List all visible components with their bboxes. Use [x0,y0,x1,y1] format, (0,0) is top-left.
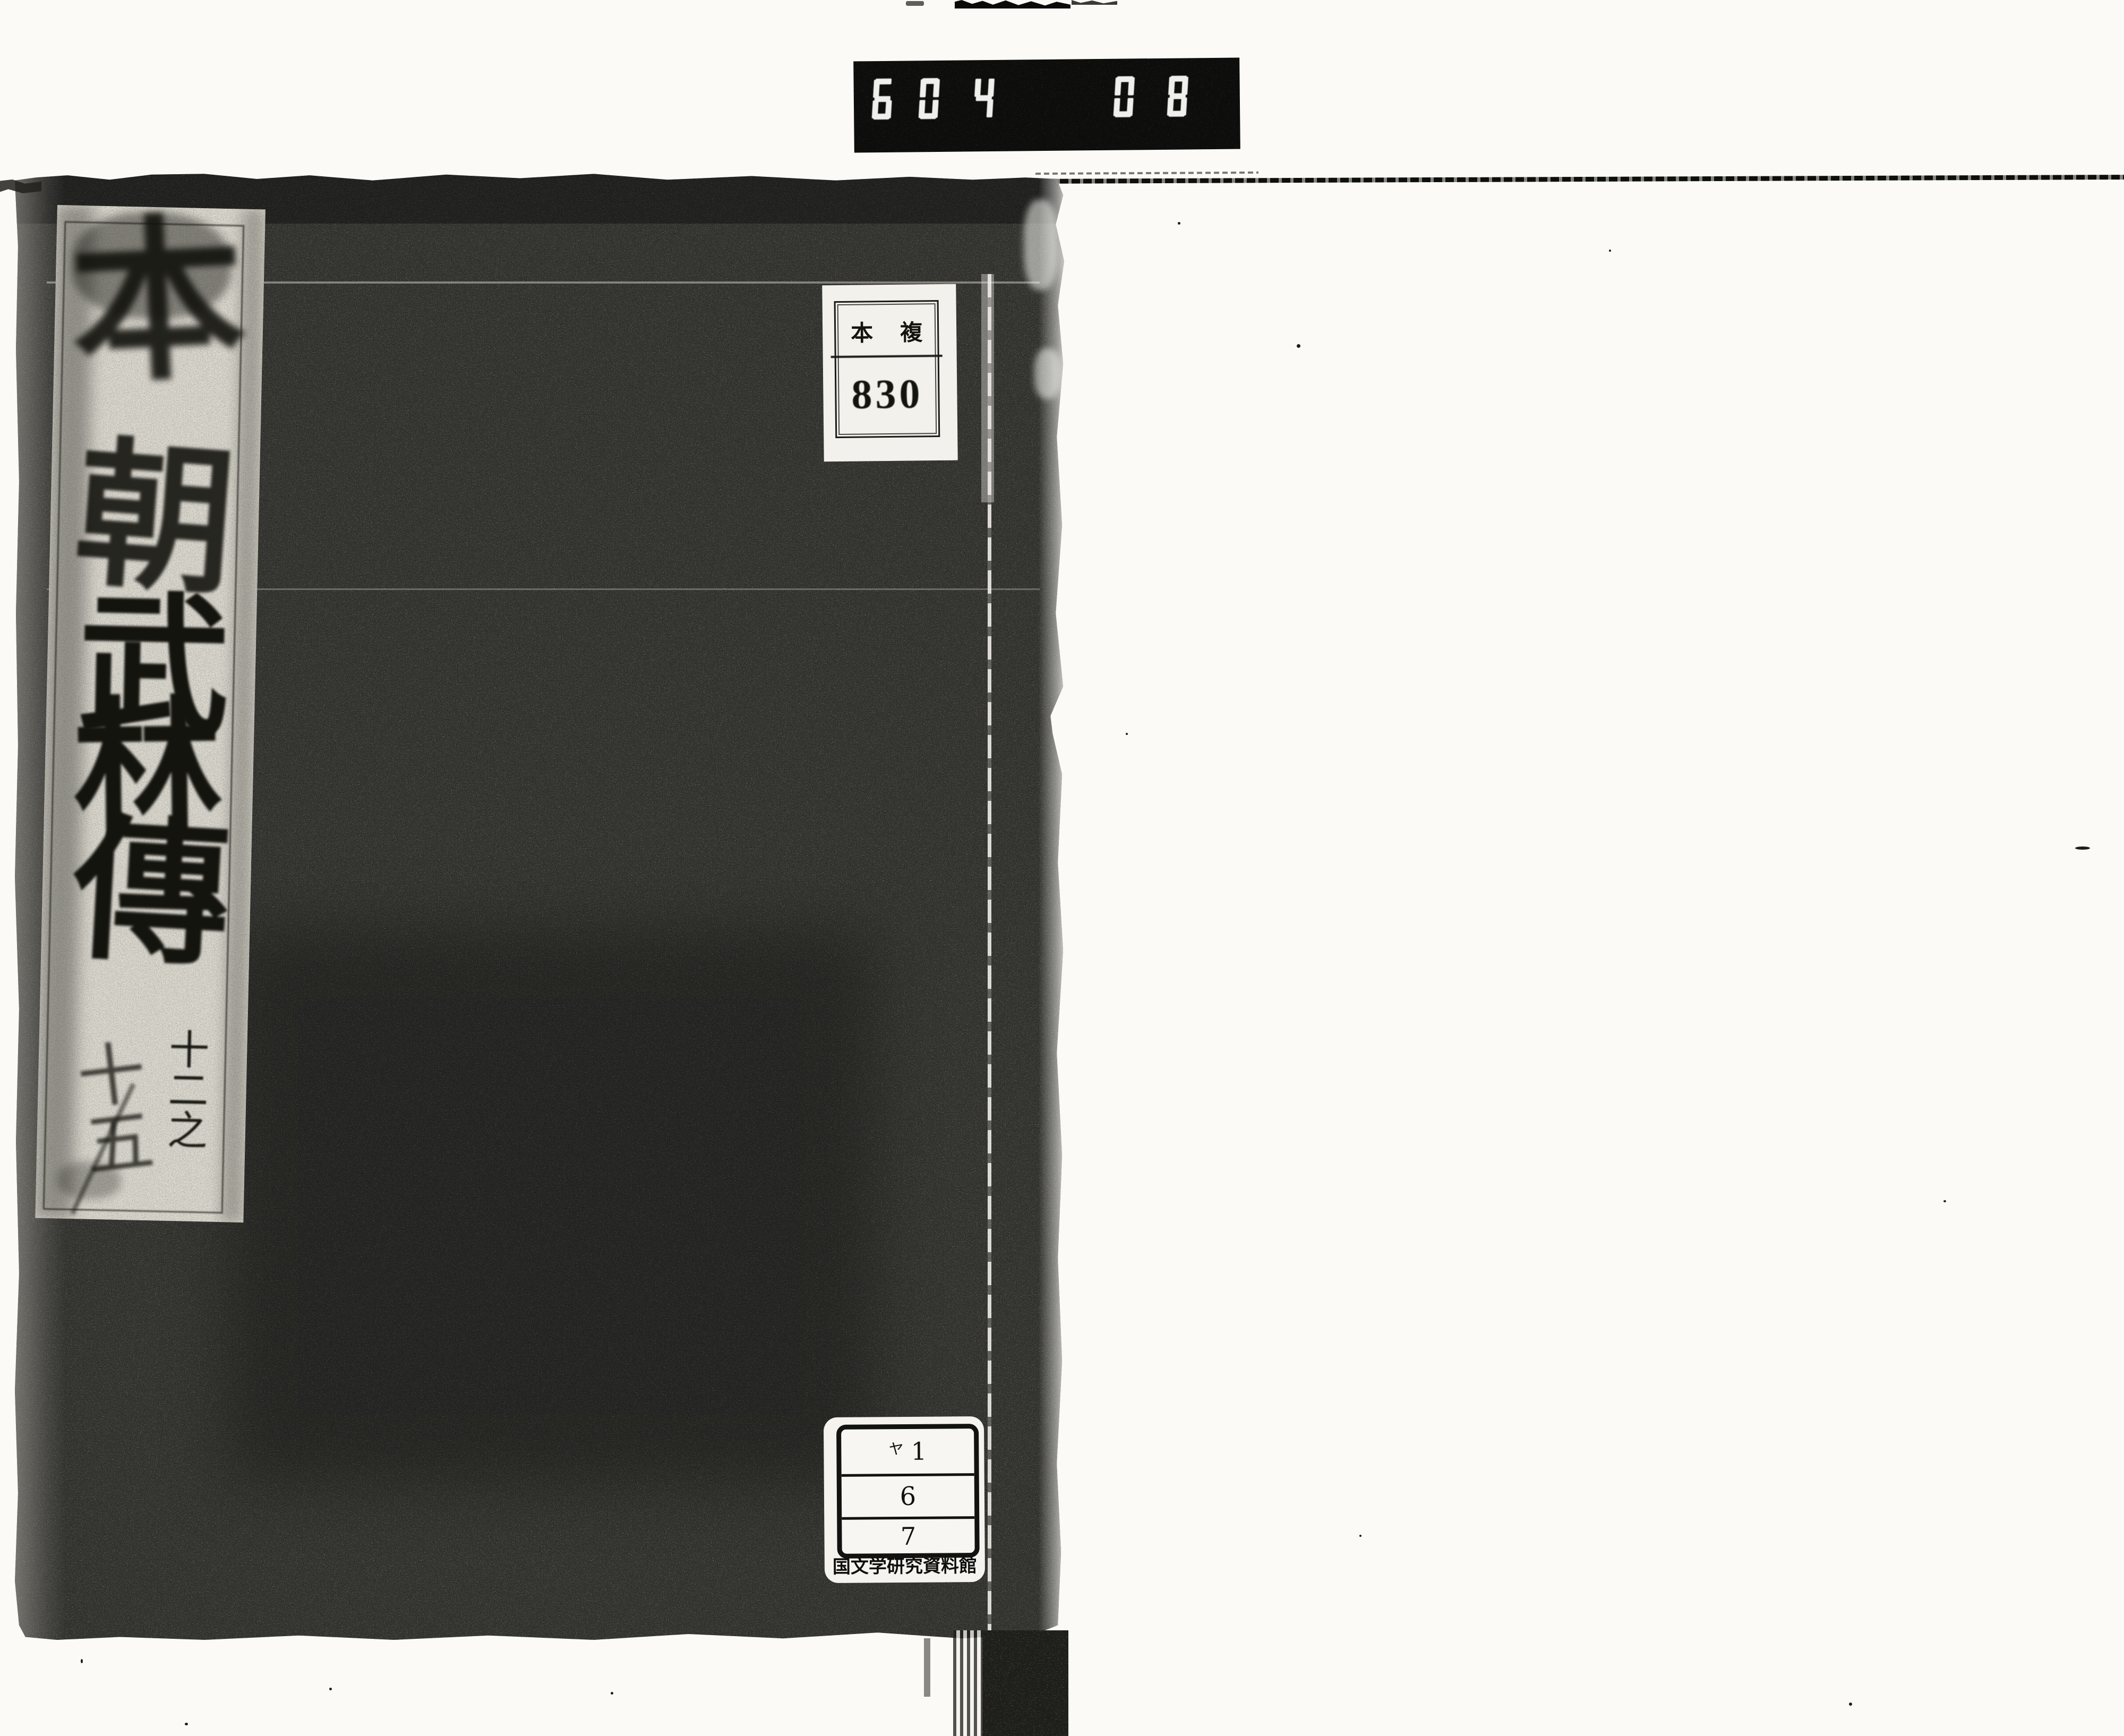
horizontal-scan-line [1037,175,2124,184]
film-frame-counter [853,58,1240,153]
photocopy-speck [1178,222,1180,225]
call-number-value: 6 [900,1482,916,1511]
scanned-book-photograph: 本 朝 武 林 傳 十二之 十五 本 複 830 ヤ 1 6 [0,0,2124,1736]
seven-segment-digit [1114,76,1135,117]
shelf-label-frame: 本 複 830 [834,300,940,438]
shelf-label-kanji-left: 本 [851,315,873,347]
shelf-number: 830 [836,370,938,418]
call-number-row-2: 6 [842,1476,975,1520]
bottom-tab-dark [982,1630,1068,1736]
digit-segment [987,99,994,117]
digit-segment [873,80,880,98]
digit-segment [1128,77,1135,95]
institution-name: 国文学研究資料館 [825,1551,985,1578]
photocopy-speck [1126,733,1128,735]
photocopy-speck [1943,1200,1946,1202]
bottom-tab-thin-streak [924,1638,930,1697]
call-number-value: 1 [911,1437,927,1466]
digit-segment [919,100,926,118]
photocopy-speck [1297,344,1300,348]
counter-digits [853,58,1239,62]
photocopy-speck [1359,1535,1361,1537]
volume-note-left: 十五 [67,1037,150,1179]
seven-segment-digit [872,79,894,119]
digit-segment [1181,76,1188,95]
digit-segment [920,79,927,97]
bottom-page-tab [953,1630,1071,1736]
seven-segment-digit [973,78,995,118]
call-number-value: 7 [901,1522,917,1551]
title-character-1: 本 [66,209,249,392]
ink-smudge [57,1161,121,1200]
photocopy-speck [2075,846,2090,850]
photocopy-speck [1849,1703,1852,1706]
call-number-label: ヤ 1 6 7 国文学研究資料館 [824,1416,985,1583]
digit-segment [1170,93,1186,99]
digit-segment [1167,98,1174,116]
title-slip: 本 朝 武 林 傳 十二之 十五 [35,205,265,1222]
photocopy-speck [611,1692,613,1695]
call-number-row-1: ヤ 1 [841,1429,974,1477]
shelf-label-header: 本 複 [836,314,938,348]
title-character-5: 傳 [69,809,234,974]
shelf-label-kanji-right: 複 [900,314,923,347]
top-edge-fragment [955,0,1070,8]
digit-segment [974,79,981,97]
seven-segment-digit [919,78,940,119]
bottom-tab-streaks [953,1630,982,1736]
seven-segment-digit [1227,75,1240,116]
cover-dark-blotch [227,927,875,1485]
photocopy-speck [81,1659,83,1663]
seven-segment-digit [1167,75,1189,116]
horizontal-scan-line-upper [1035,172,1258,175]
volume-note-right: 十二之 [163,1028,206,1150]
call-number-grid: ヤ 1 6 7 [836,1424,980,1559]
digit-segment [1168,77,1175,95]
shelf-label: 本 複 830 [822,284,957,462]
digit-segment [1114,98,1120,116]
digit-segment [988,79,995,97]
cover-fold-seam [988,274,991,1634]
digit-segment [1115,78,1121,96]
photocopy-speck [185,1723,188,1725]
photocopy-speck [1609,250,1611,252]
call-number-row-3: 7 [842,1519,974,1553]
digit-segment [933,79,940,97]
call-number-prefix: ヤ [889,1438,904,1459]
cover-right-edge-fade [1039,173,1067,1640]
digit-segment [885,100,892,118]
photocopy-speck [329,1688,332,1690]
top-edge-fragment-small [906,1,924,6]
top-edge-fragment-tail [1072,0,1117,5]
